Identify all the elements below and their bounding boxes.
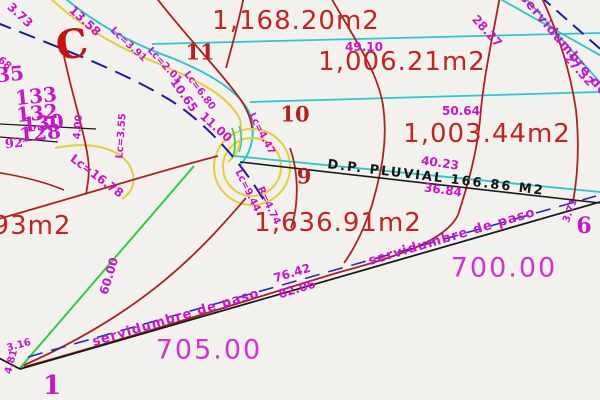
block-number-128: 128 bbox=[18, 121, 62, 145]
dim-11-00: 11.00 bbox=[198, 110, 234, 144]
lot-number-9: 9 bbox=[297, 166, 312, 187]
corner-number-6: 6 bbox=[576, 215, 591, 237]
curve-lc-3-91: Lc=3.91 bbox=[108, 26, 148, 64]
dim-50-64: 50.64 bbox=[442, 105, 480, 117]
curve-lc-2-01: Lc=2.01 bbox=[145, 46, 183, 86]
area-1003: 1,003.44m2 bbox=[403, 121, 571, 147]
curve-lc-4-47: Lc=4.47 bbox=[246, 112, 276, 157]
curve-lc-16-78: Lc=16.78 bbox=[68, 152, 125, 199]
area-1168: 1,168.20m2 bbox=[212, 8, 380, 34]
dim-49-10: 49.10 bbox=[345, 41, 383, 53]
plat-drawing: 1,168.20m21,006.21m21,003.44m21,636.91m2… bbox=[0, 0, 600, 400]
lot-number-11: 11 bbox=[185, 42, 214, 63]
dim-4-81: 4.81 bbox=[4, 349, 20, 375]
block-number-92: 92 bbox=[4, 137, 23, 152]
curve-lc-3-55: Lc=3.55 bbox=[115, 113, 128, 159]
area-1006: 1,006.21m2 bbox=[318, 49, 486, 75]
lot-number-10: 10 bbox=[280, 104, 309, 125]
dim-4-00: 4.00 bbox=[73, 114, 85, 139]
dim-28-27: 28.27 bbox=[470, 13, 504, 49]
dim-3-73: 3.73 bbox=[5, 1, 35, 30]
elevation-700: 700.00 bbox=[451, 255, 557, 282]
elevation-705: 705.00 bbox=[156, 337, 262, 364]
dim-60-00: 60.00 bbox=[98, 256, 121, 296]
labels-layer: 1,168.20m21,006.21m21,003.44m21,636.91m2… bbox=[0, 0, 600, 400]
easement-servidumbre-topright: servidumbre de paso bbox=[517, 0, 600, 133]
corner-number-1: 1 bbox=[43, 373, 61, 399]
area-93: 93m2 bbox=[0, 213, 71, 239]
